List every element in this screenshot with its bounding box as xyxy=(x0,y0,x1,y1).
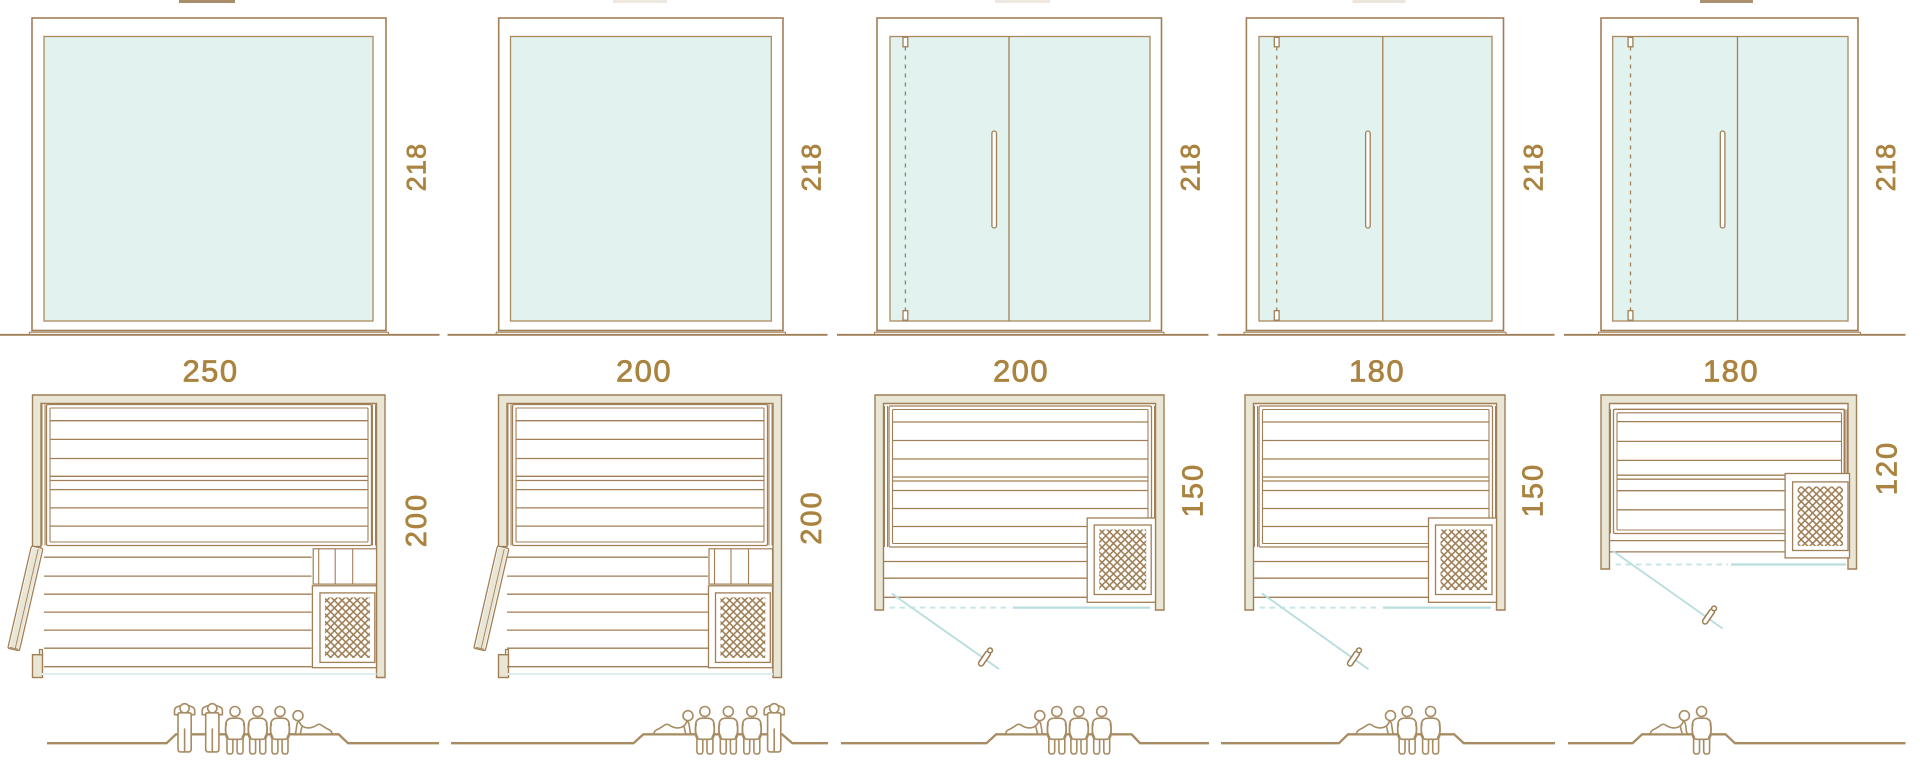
svg-text:150: 150 xyxy=(1517,463,1549,517)
svg-text:150: 150 xyxy=(1177,463,1209,517)
svg-text:200: 200 xyxy=(993,353,1049,388)
svg-text:200: 200 xyxy=(616,353,672,388)
svg-text:218: 218 xyxy=(401,143,431,192)
svg-text:200: 200 xyxy=(796,490,828,544)
svg-text:250: 250 xyxy=(183,353,239,388)
svg-text:180: 180 xyxy=(1703,353,1759,388)
svg-text:218: 218 xyxy=(1519,143,1549,192)
svg-text:120: 120 xyxy=(1871,441,1903,495)
svg-text:180: 180 xyxy=(1349,353,1405,388)
svg-text:218: 218 xyxy=(1871,143,1901,192)
svg-text:218: 218 xyxy=(1176,143,1206,192)
svg-text:218: 218 xyxy=(796,143,826,192)
svg-text:200: 200 xyxy=(401,493,433,547)
